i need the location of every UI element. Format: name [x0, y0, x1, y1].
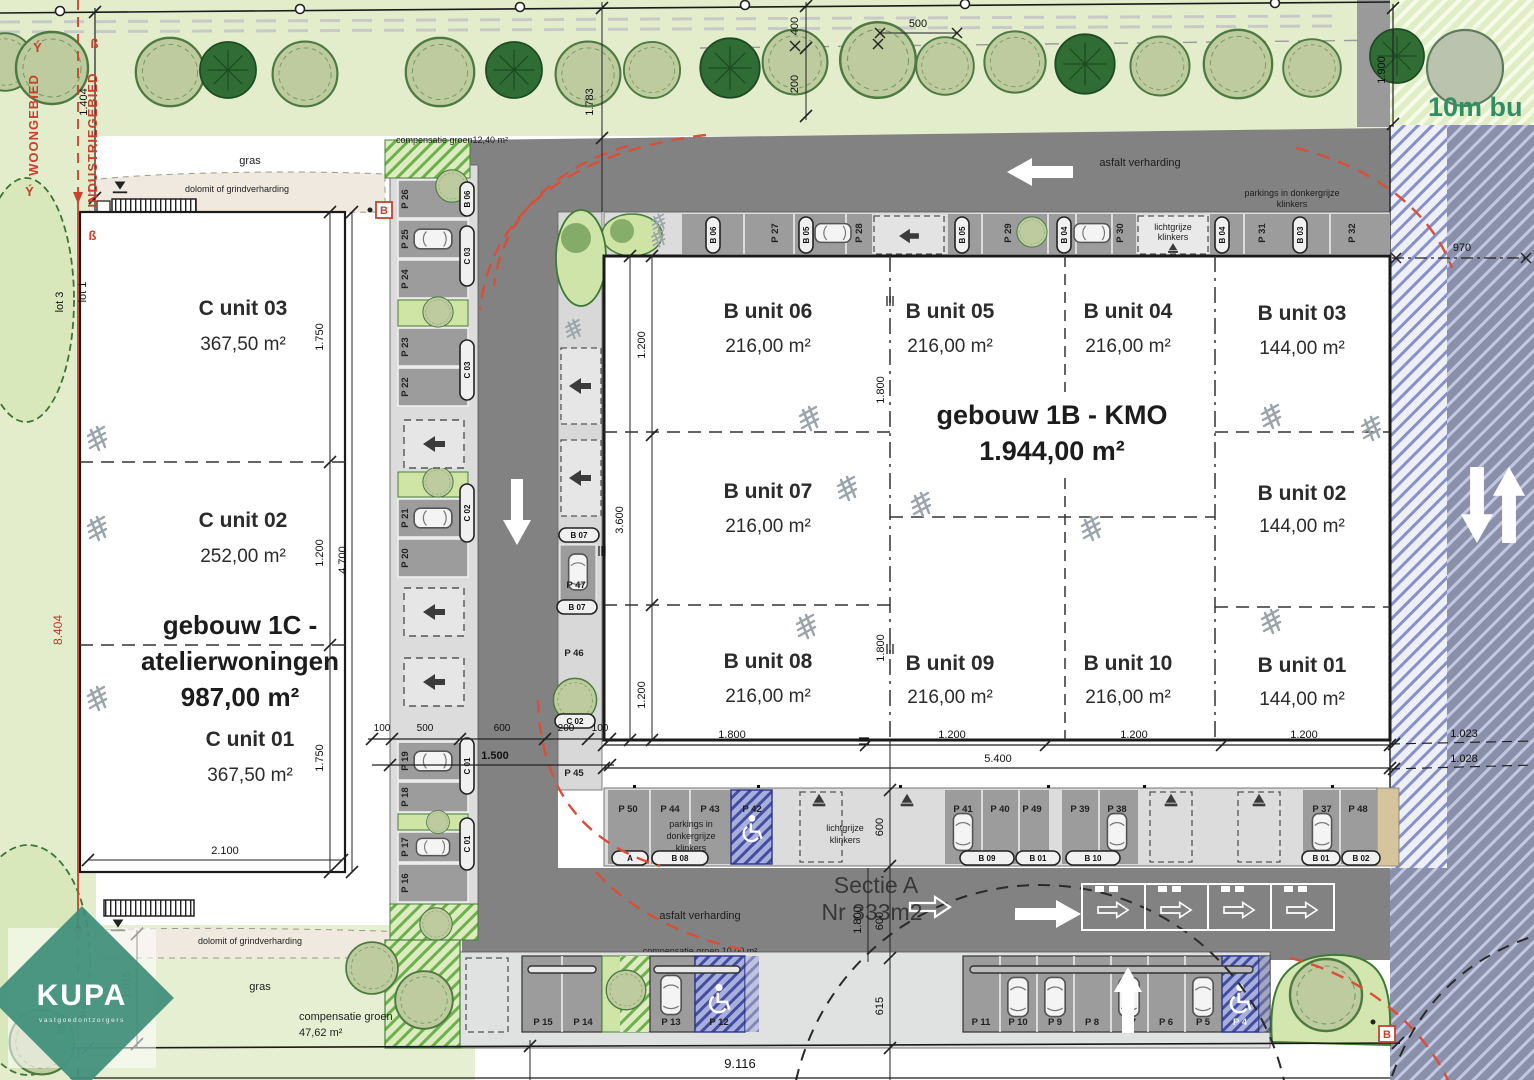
- svg-text:1.200: 1.200: [1120, 729, 1148, 741]
- b-unit-01: B unit 01: [1258, 654, 1347, 677]
- gras-label-top: gras: [239, 155, 261, 167]
- svg-text:P 32: P 32: [1347, 223, 1358, 242]
- industriegebied-mark-bottom: ß: [89, 228, 98, 243]
- svg-text:1.800: 1.800: [875, 376, 887, 404]
- sectie-line1: Sectie A: [834, 872, 919, 898]
- comp-groen-top-label: compensatie groen12,40 m²: [396, 135, 508, 145]
- svg-text:B 09: B 09: [979, 854, 996, 863]
- svg-text:P 23: P 23: [400, 337, 411, 356]
- stairs-bottom: [104, 900, 194, 916]
- b-unit-03: B unit 03: [1258, 302, 1347, 325]
- svg-text:P 9: P 9: [1048, 1017, 1062, 1028]
- svg-text:B: B: [1383, 1029, 1391, 1041]
- svg-text:C 01: C 01: [463, 835, 472, 852]
- svg-text:P 45: P 45: [564, 768, 584, 779]
- svg-text:P 50: P 50: [618, 804, 637, 815]
- svg-text:P 12: P 12: [709, 1017, 728, 1028]
- lichtgrijze-top-1: lichtgrijze: [1154, 222, 1192, 232]
- road-right: [1447, 125, 1534, 1080]
- svg-text:P 6: P 6: [1159, 1017, 1173, 1028]
- c-building-area: 987,00 m²: [181, 682, 300, 712]
- svg-text:5.400: 5.400: [984, 753, 1012, 765]
- b-unit-06: B unit 06: [724, 300, 813, 323]
- asfalt-label-bottom: asfalt verharding: [659, 910, 740, 922]
- building-b: B unit 06 216,00 m² B unit 05 216,00 m² …: [599, 250, 1390, 746]
- svg-text:500: 500: [417, 723, 434, 734]
- c-unit-02: C unit 02: [199, 509, 288, 532]
- building-c: C unit 03 367,50 m² C unit 02 252,00 m² …: [80, 206, 358, 878]
- svg-text:1.900: 1.900: [1376, 56, 1388, 84]
- svg-text:P 26: P 26: [400, 189, 411, 208]
- svg-text:P 38: P 38: [1107, 804, 1126, 815]
- road-left: [470, 212, 558, 870]
- road-bottom: [462, 868, 1534, 960]
- industriegebied-mark-top: ß: [91, 36, 100, 51]
- svg-text:B 04: B 04: [1060, 226, 1069, 243]
- industriegebied-label: INDUSTRIEGEBIED: [85, 73, 100, 208]
- svg-text:B 01: B 01: [1030, 854, 1047, 863]
- svg-text:1.200: 1.200: [636, 331, 648, 359]
- svg-text:216,00 m²: 216,00 m²: [907, 687, 993, 708]
- svg-text:C 03: C 03: [463, 247, 472, 264]
- svg-text:4.700: 4.700: [337, 546, 349, 574]
- b-unit-04: B unit 04: [1084, 300, 1173, 323]
- lichtgrijze-row1-2: klinkers: [830, 835, 861, 845]
- svg-text:B: B: [380, 205, 388, 217]
- svg-text:144,00 m²: 144,00 m²: [1259, 516, 1345, 537]
- svg-text:B 05: B 05: [958, 226, 967, 243]
- c-unit-03: C unit 03: [199, 297, 288, 320]
- svg-text:P 4: P 4: [1233, 1017, 1248, 1028]
- svg-text:216,00 m²: 216,00 m²: [1085, 336, 1171, 357]
- svg-text:367,50 m²: 367,50 m²: [200, 334, 286, 355]
- asfalt-label-top: asfalt verharding: [1099, 157, 1180, 169]
- svg-text:P 46: P 46: [564, 648, 583, 659]
- svg-text:P 18: P 18: [400, 787, 411, 806]
- svg-text:B 06: B 06: [463, 190, 472, 207]
- comp-groen-left-1: compensatie groen: [299, 1011, 393, 1023]
- svg-text:P 37: P 37: [1312, 804, 1331, 815]
- b-unit-07: B unit 07: [724, 480, 813, 503]
- svg-text:P 39: P 39: [1070, 804, 1089, 815]
- svg-text:200: 200: [558, 723, 575, 734]
- svg-text:B 01: B 01: [1313, 854, 1330, 863]
- b-unit-10: B unit 10: [1084, 652, 1173, 675]
- parking-row2: P 15 P 14 P 13 P 12 P 11 P 10 P 9 P 8 P …: [460, 952, 1390, 1048]
- svg-text:100: 100: [374, 723, 391, 734]
- b-unit-09: B unit 09: [906, 652, 995, 675]
- dolomit-label-bottom: dolomit of grindverharding: [198, 936, 302, 946]
- woongebied-mark-bottom: Ý: [25, 184, 35, 199]
- svg-text:2.100: 2.100: [211, 845, 239, 857]
- svg-text:B 03: B 03: [1296, 226, 1305, 243]
- svg-text:P 10: P 10: [1008, 1017, 1027, 1028]
- site-plan: 10m bu gras dolomit of grindverharding d…: [0, 0, 1534, 1080]
- parking-row1: P 50 P 44 P 43 P 42 P 41 P 40 P 49 P 39 …: [604, 785, 1399, 866]
- b-unit-08: B unit 08: [724, 650, 813, 673]
- b-unit-05: B unit 05: [906, 300, 995, 323]
- svg-text:P 42: P 42: [742, 804, 761, 815]
- svg-text:500: 500: [909, 18, 927, 30]
- sectie-label: Sectie A Nr 333m2: [822, 872, 923, 925]
- svg-text:P 49: P 49: [1022, 804, 1041, 815]
- svg-text:P 27: P 27: [770, 223, 781, 242]
- svg-text:P 21: P 21: [400, 508, 411, 528]
- svg-text:1.200: 1.200: [636, 681, 648, 709]
- lot3-label-top: lot 3: [54, 292, 66, 313]
- lot1-label-top: lot 1: [77, 282, 89, 303]
- svg-text:1.750: 1.750: [314, 744, 326, 772]
- b-building-title: gebouw 1B - KMO: [937, 400, 1168, 430]
- svg-text:216,00 m²: 216,00 m²: [1085, 687, 1171, 708]
- svg-text:367,50 m²: 367,50 m²: [207, 765, 293, 786]
- svg-text:600: 600: [874, 912, 886, 930]
- svg-text:P 22: P 22: [400, 377, 411, 396]
- svg-text:P 16: P 16: [400, 873, 411, 892]
- svg-text:P 24: P 24: [400, 269, 411, 289]
- svg-text:P 19: P 19: [400, 751, 411, 770]
- buffer-label: 10m bu: [1428, 92, 1523, 122]
- woongebied-mark-top: Ý: [33, 40, 43, 55]
- donker-row1-1: parkings in: [669, 819, 713, 829]
- svg-text:1.500: 1.500: [481, 750, 509, 762]
- svg-text:P 14: P 14: [573, 1017, 593, 1028]
- svg-text:P 15: P 15: [533, 1017, 553, 1028]
- svg-text:200: 200: [789, 75, 801, 93]
- svg-text:1.200: 1.200: [938, 729, 966, 741]
- svg-text:P 30: P 30: [1115, 223, 1126, 242]
- svg-text:1.028: 1.028: [1450, 753, 1478, 765]
- svg-text:B 08: B 08: [672, 854, 689, 863]
- svg-text:P 5: P 5: [1196, 1017, 1211, 1028]
- svg-text:P 41: P 41: [953, 804, 973, 815]
- svg-text:1.023: 1.023: [1450, 728, 1478, 740]
- svg-text:B 07: B 07: [569, 603, 586, 612]
- kupa-logo: KUPA vastgoedontzorgers: [0, 906, 174, 1080]
- svg-text:P 20: P 20: [400, 548, 411, 567]
- road-top: [470, 128, 1390, 212]
- svg-text:B 07: B 07: [571, 531, 588, 540]
- svg-text:1.200: 1.200: [1290, 729, 1318, 741]
- svg-text:P 11: P 11: [972, 1017, 992, 1028]
- svg-text:400: 400: [789, 17, 801, 35]
- svg-text:8.404: 8.404: [51, 615, 65, 645]
- site-plan-drawing: 10m bu gras dolomit of grindverharding d…: [0, 0, 1534, 1080]
- svg-text:B 06: B 06: [709, 226, 718, 243]
- svg-text:100: 100: [592, 723, 609, 734]
- svg-text:B 10: B 10: [1085, 854, 1102, 863]
- svg-text:P 48: P 48: [1348, 804, 1367, 815]
- svg-text:252,00 m²: 252,00 m²: [200, 546, 286, 567]
- svg-text:B 05: B 05: [802, 226, 811, 243]
- gras-label-bottom: gras: [249, 981, 271, 993]
- svg-text:P 31: P 31: [1257, 223, 1268, 243]
- svg-text:600: 600: [874, 818, 886, 836]
- c-building-title-1: gebouw 1C -: [163, 610, 318, 640]
- svg-text:144,00 m²: 144,00 m²: [1259, 689, 1345, 710]
- svg-text:1.800: 1.800: [852, 906, 864, 934]
- svg-text:P 17: P 17: [400, 837, 411, 856]
- svg-text:P 44: P 44: [660, 804, 680, 815]
- lichtgrijze-row1-1: lichtgrijze: [826, 823, 864, 833]
- svg-text:P 29: P 29: [1003, 223, 1014, 242]
- svg-text:1.750: 1.750: [314, 323, 326, 351]
- svg-text:P 47: P 47: [566, 580, 585, 591]
- svg-text:3.600: 3.600: [614, 506, 626, 534]
- c-building-title-2: atelierwoningen: [141, 646, 339, 676]
- svg-text:1.783: 1.783: [584, 88, 596, 116]
- b-unit-02: B unit 02: [1258, 482, 1347, 505]
- svg-text:P 28: P 28: [854, 223, 865, 242]
- svg-text:216,00 m²: 216,00 m²: [725, 686, 811, 707]
- svg-text:C 02: C 02: [463, 504, 472, 521]
- lichtgrijze-top-2: klinkers: [1158, 232, 1189, 242]
- svg-text:970: 970: [1453, 242, 1471, 254]
- svg-text:1.200: 1.200: [314, 539, 326, 567]
- kupa-wordmark: KUPA: [37, 979, 128, 1012]
- dolomit-label-top: dolomit of grindverharding: [185, 184, 289, 194]
- woongebied-label: WOONGEBIED: [26, 74, 41, 176]
- svg-text:1.800: 1.800: [718, 729, 746, 741]
- buffer-zone: 10m bu: [1370, 0, 1534, 127]
- svg-text:P 25: P 25: [400, 229, 411, 249]
- svg-text:B 02: B 02: [1353, 854, 1370, 863]
- svg-text:P 13: P 13: [661, 1017, 680, 1028]
- c-unit-01: C unit 01: [206, 728, 295, 751]
- b-building-area: 1.944,00 m²: [979, 436, 1125, 466]
- svg-text:C 01: C 01: [463, 757, 472, 774]
- svg-text:144,00 m²: 144,00 m²: [1259, 338, 1345, 359]
- svg-text:615: 615: [874, 997, 886, 1015]
- svg-text:A: A: [627, 854, 633, 863]
- svg-text:216,00 m²: 216,00 m²: [725, 336, 811, 357]
- svg-text:9.116: 9.116: [724, 1056, 756, 1071]
- svg-text:P 8: P 8: [1085, 1017, 1099, 1028]
- kupa-tagline: vastgoedontzorgers: [39, 1017, 125, 1024]
- svg-text:216,00 m²: 216,00 m²: [725, 516, 811, 537]
- svg-text:P 40: P 40: [990, 804, 1009, 815]
- parkings-donker-top-1: parkings in donkergrijze: [1244, 188, 1339, 198]
- svg-text:B 04: B 04: [1218, 226, 1227, 243]
- svg-text:216,00 m²: 216,00 m²: [907, 336, 993, 357]
- svg-text:600: 600: [494, 723, 511, 734]
- donker-row1-2: donkergrijze: [666, 831, 715, 841]
- sectie-line2: Nr 333m2: [822, 899, 923, 925]
- svg-text:C 03: C 03: [463, 361, 472, 378]
- svg-text:1.800: 1.800: [875, 634, 887, 662]
- svg-text:P 43: P 43: [700, 804, 719, 815]
- parkings-donker-top-2: klinkers: [1277, 199, 1308, 209]
- comp-groen-left-2: 47,62 m²: [299, 1027, 343, 1039]
